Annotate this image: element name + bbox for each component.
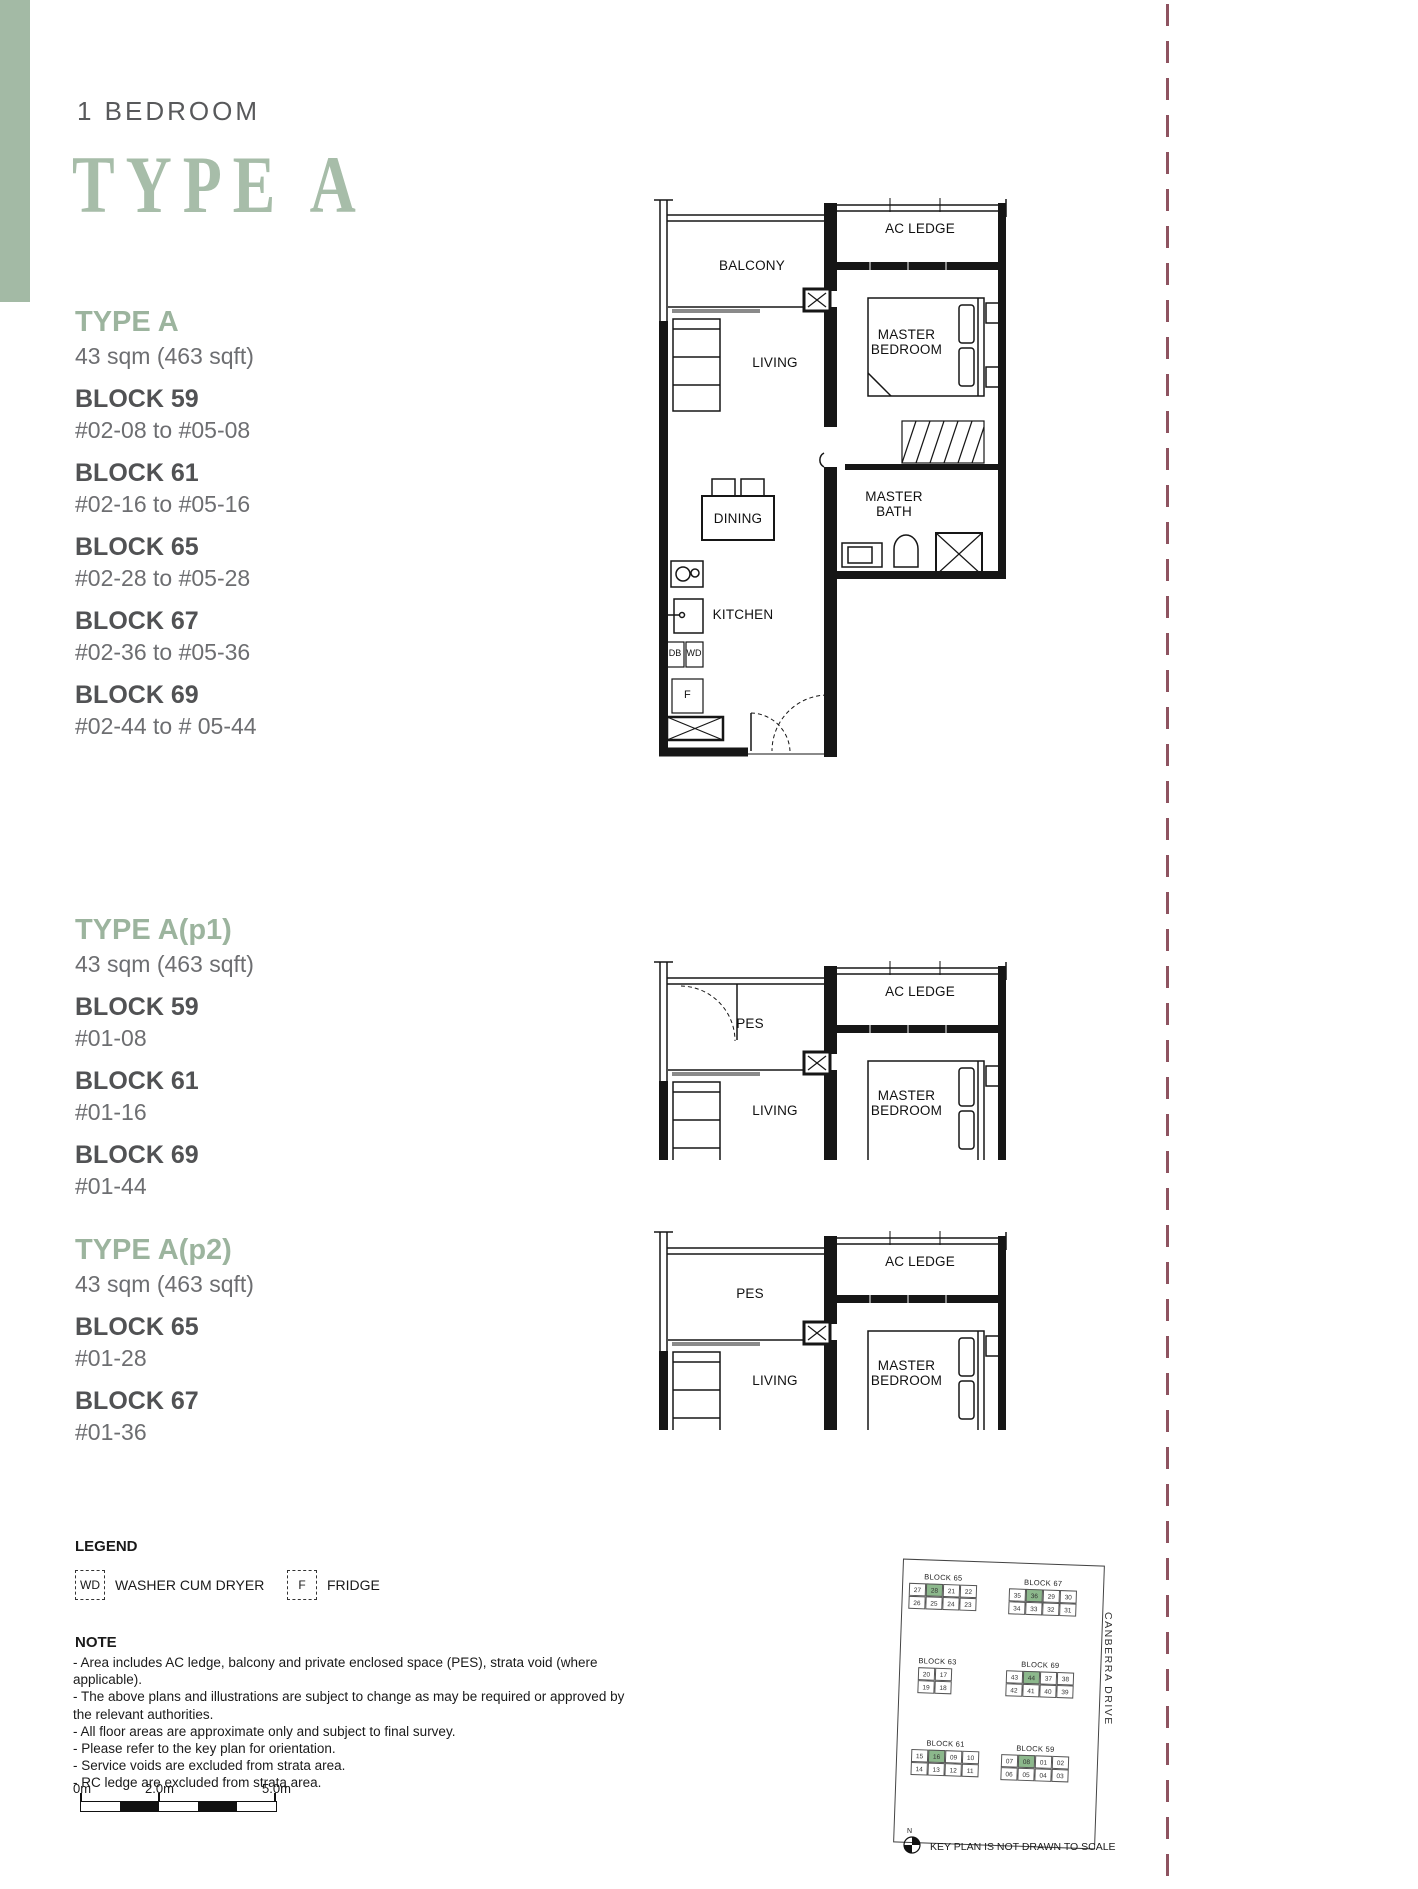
section-title: TYPE A(p1): [75, 914, 435, 947]
legend-label-fridge: FRIDGE: [327, 1577, 380, 1593]
section-type-a-p2: TYPE A(p2) 43 sqm (463 sqft) BLOCK 65 #0…: [75, 1234, 435, 1446]
room-label-master-bedroom: MASTER BEDROOM: [859, 327, 954, 357]
ac-unit-icon: [804, 289, 830, 311]
section-type-a: TYPE A 43 sqm (463 sqft) BLOCK 59 #02-08…: [75, 306, 435, 740]
keyplan-block-69: BLOCK 69 43 44 37 38 42 41 40 39: [1005, 1659, 1074, 1698]
keyplan-block-65: BLOCK 65 27 28 21 22 26 25 24 23: [908, 1572, 977, 1611]
note-title: NOTE: [75, 1634, 117, 1651]
keyplan-block-67: BLOCK 67 35 36 29 30 34 33 32 31: [1008, 1577, 1077, 1616]
fold-dash-line: [1166, 4, 1169, 1886]
block-entry: BLOCK 69 #01-44: [75, 1141, 435, 1200]
label-db: DB: [666, 648, 684, 658]
room-label-ac-ledge: AC LEDGE: [875, 984, 965, 999]
street-label-canberra-drive: CANBERRA DRIVE: [1102, 1612, 1114, 1792]
note-list: - Area includes AC ledge, balcony and pr…: [73, 1654, 633, 1792]
section-area: 43 sqm (463 sqft): [75, 343, 435, 370]
category-heading: 1 BEDROOM: [77, 96, 260, 127]
structural-walls: [659, 203, 1006, 757]
floorplan-type-a-p2: PES AC LEDGE MASTER BEDROOM LIVING: [640, 1218, 1040, 1430]
floorplan-drawing: [640, 195, 1040, 770]
pes-gate-icon: [681, 984, 737, 1041]
north-label: N: [907, 1828, 912, 1835]
scale-label-end: 5.0m: [262, 1781, 291, 1796]
floorplan-drawing: [640, 1218, 1040, 1430]
block-entry: BLOCK 69 #02-44 to # 05-44: [75, 681, 435, 740]
bath-door-hinge: [820, 453, 824, 467]
sofa-icon: [673, 1352, 720, 1430]
legend-label-wd: WASHER CUM DRYER: [115, 1577, 264, 1593]
north-compass-icon: [903, 1836, 921, 1854]
room-label-master-bath: MASTER BATH: [852, 489, 936, 519]
legend-symbol-wd: WD: [75, 1570, 105, 1600]
legend-symbol-fridge: F: [287, 1570, 317, 1600]
room-label-master-bedroom: MASTER BEDROOM: [859, 1088, 954, 1118]
ac-unit-icon: [804, 1322, 830, 1344]
room-label-master-bedroom: MASTER BEDROOM: [859, 1358, 954, 1388]
shower-icon: [936, 533, 982, 575]
block-entry: BLOCK 67 #01-36: [75, 1387, 435, 1446]
room-label-living: LIVING: [735, 355, 815, 370]
scale-segment: [198, 1802, 237, 1811]
legend-title: LEGEND: [75, 1538, 138, 1555]
block-entry: BLOCK 65 #01-28: [75, 1313, 435, 1372]
note-item: - Service voids are excluded from strata…: [73, 1757, 633, 1774]
note-item: - The above plans and illustrations are …: [73, 1688, 633, 1722]
room-label-living: LIVING: [735, 1103, 815, 1118]
block-entry: BLOCK 61 #01-16: [75, 1067, 435, 1126]
keyplan-caption: KEY PLAN IS NOT DRAWN TO SCALE: [930, 1841, 1116, 1853]
dining-table-icon: [702, 479, 774, 540]
note-item: - Area includes AC ledge, balcony and pr…: [73, 1654, 633, 1688]
section-type-a-p1: TYPE A(p1) 43 sqm (463 sqft) BLOCK 59 #0…: [75, 914, 435, 1200]
floorplan-type-a-p1: PES AC LEDGE MASTER BEDROOM LIVING: [640, 948, 1040, 1160]
floorplan-drawing: [640, 948, 1040, 1160]
section-title: TYPE A(p2): [75, 1234, 435, 1267]
room-label-balcony: BALCONY: [700, 258, 804, 273]
block-entry: BLOCK 59 #02-08 to #05-08: [75, 385, 435, 444]
room-label-dining: DINING: [702, 511, 774, 526]
block-entry: BLOCK 61 #02-16 to #05-16: [75, 459, 435, 518]
scale-segment: [120, 1802, 159, 1811]
label-wd: WD: [685, 648, 703, 658]
room-label-kitchen: KITCHEN: [708, 607, 778, 622]
section-title: TYPE A: [75, 306, 435, 339]
keyplan-block-59: BLOCK 59 07 08 01 02 06 05 04 03: [1000, 1743, 1069, 1782]
room-label-ac-ledge: AC LEDGE: [875, 1254, 965, 1269]
room-label-pes: PES: [705, 1016, 795, 1031]
toilet-icon: [894, 535, 918, 567]
brochure-page: 1 BEDROOM TYPE A TYPE A 43 sqm (463 sqft…: [0, 0, 1418, 1889]
sofa-icon: [673, 1082, 720, 1160]
sink-icon: [667, 599, 703, 633]
rc-ledge-icon: [667, 717, 723, 740]
note-item: - All floor areas are approximate only a…: [73, 1723, 633, 1740]
keyplan-block-63: BLOCK 63 20 17 19 18: [917, 1656, 957, 1694]
wardrobe-icon: [902, 421, 984, 463]
vanity-icon: [842, 543, 882, 567]
stove-icon: [671, 561, 703, 587]
scale-label-start: 0m: [73, 1781, 91, 1796]
scale-bar: [80, 1801, 277, 1812]
room-label-ac-ledge: AC LEDGE: [875, 221, 965, 236]
keyplan-block-61: BLOCK 61 15 16 09 10 14 13 12 11: [910, 1738, 979, 1777]
sofa-icon: [673, 319, 720, 411]
section-area: 43 sqm (463 sqft): [75, 1271, 435, 1298]
block-entry: BLOCK 67 #02-36 to #05-36: [75, 607, 435, 666]
label-fridge: F: [672, 689, 703, 701]
ac-unit-icon: [804, 1052, 830, 1074]
type-wordmark: TYPE A: [72, 138, 367, 232]
floorplan-type-a: BALCONY AC LEDGE LIVING MASTER BEDROOM M…: [640, 195, 1040, 770]
block-entry: BLOCK 59 #01-08: [75, 993, 435, 1052]
room-label-living: LIVING: [735, 1373, 815, 1388]
room-label-pes: PES: [705, 1286, 795, 1301]
block-entry: BLOCK 65 #02-28 to #05-28: [75, 533, 435, 592]
section-area: 43 sqm (463 sqft): [75, 951, 435, 978]
note-item: - Please refer to the key plan for orien…: [73, 1740, 633, 1757]
key-plan: BLOCK 65 27 28 21 22 26 25 24 23 BLOCK 6…: [893, 1559, 1105, 1850]
entry-door-icon: [751, 695, 827, 751]
accent-bar: [0, 0, 30, 302]
